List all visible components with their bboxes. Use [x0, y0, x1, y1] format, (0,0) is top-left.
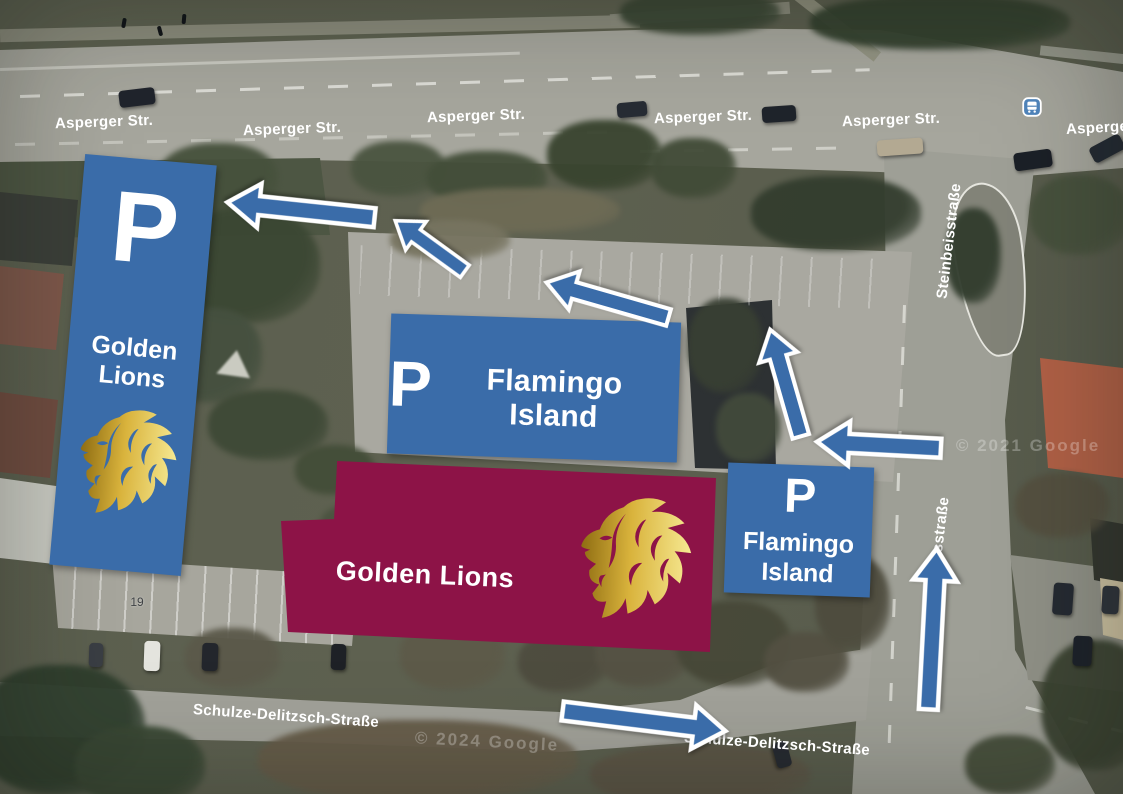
street-label: Asperger Str.: [842, 110, 941, 130]
parking-p-symbol: P: [75, 176, 215, 282]
parked-car: [1101, 586, 1119, 615]
bus-stop-icon: [1022, 97, 1042, 117]
parking-sign-label: Flamingo Island: [724, 526, 872, 590]
parked-car: [1052, 582, 1074, 615]
tree-cluster: [965, 735, 1055, 794]
google-watermark: © 2021 Google: [956, 436, 1100, 456]
steinbeis-north-arrow: [900, 542, 965, 716]
tree-cluster: [751, 176, 921, 251]
tree-cluster: [1030, 175, 1123, 255]
parked-car: [202, 643, 219, 672]
golden-lion-logo: [63, 403, 186, 525]
house-number: 19: [130, 595, 143, 609]
entry-west-arrow: [811, 414, 948, 477]
street-label: Asperger Str.: [55, 112, 154, 132]
parked-car: [330, 644, 346, 671]
tree-cluster: [1015, 473, 1110, 538]
tree-cluster: [651, 138, 736, 198]
street-label: Asperger Str.: [427, 106, 526, 126]
parked-car: [89, 643, 104, 667]
tree-cluster: [547, 120, 662, 190]
tree-cluster: [185, 628, 280, 688]
garden-tent: [216, 348, 253, 378]
tree-cluster: [620, 0, 780, 35]
parked-car: [1072, 636, 1093, 667]
golden-lions-building-highlight: Golden Lions: [281, 461, 716, 652]
parking-p-symbol: P: [726, 470, 874, 523]
tree-cluster: [75, 726, 205, 794]
parking-sign-flamingo-island-small: P Flamingo Island: [724, 462, 874, 597]
parked-car: [118, 86, 156, 107]
pedestrian: [182, 14, 187, 24]
parked-car: [761, 105, 796, 123]
map-stage: P Golden Lions P Flamingo Island P Flami…: [0, 0, 1123, 794]
parking-sign-label: Golden Lions: [65, 328, 202, 397]
street-label: Asperger Str.: [654, 107, 753, 127]
golden-lion-logo: [560, 494, 704, 627]
parked-car: [876, 137, 923, 156]
street-label: Asperger Str.: [243, 119, 342, 139]
parking-sign-label: Flamingo Island: [442, 362, 665, 437]
building-label: Golden Lions: [335, 556, 515, 595]
tree-cluster: [810, 0, 1070, 50]
parking-p-symbol: P: [388, 351, 433, 416]
parked-car: [143, 641, 160, 672]
parked-car: [616, 100, 647, 118]
